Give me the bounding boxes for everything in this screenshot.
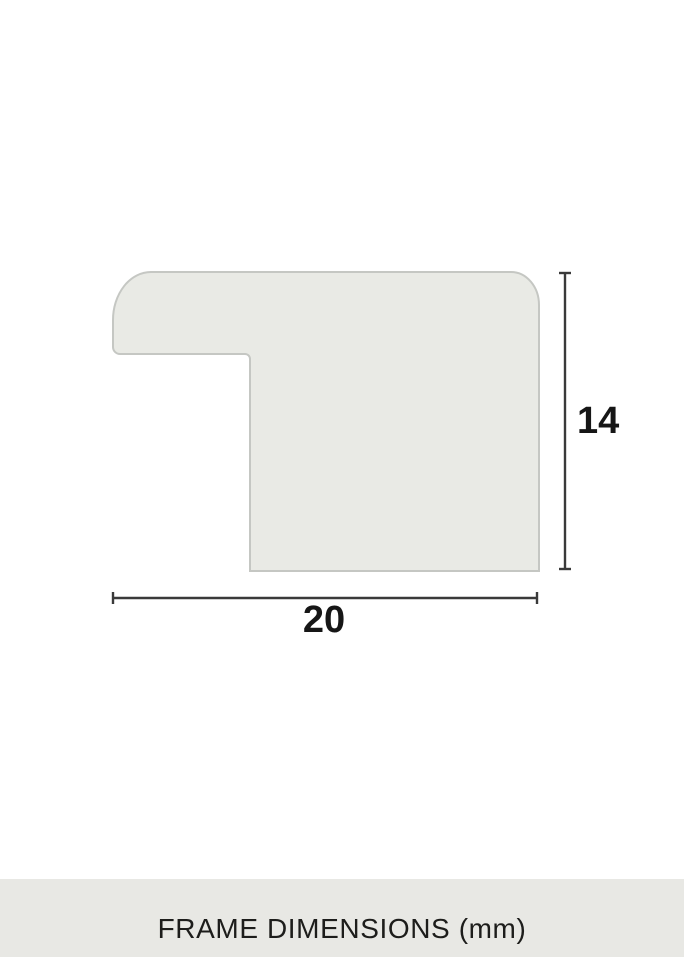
frame-dimensions-diagram: 14 20 FRAME DIMENSIONS (mm) (0, 0, 684, 957)
frame-profile-shape (113, 272, 539, 571)
height-dimension-value: 14 (577, 402, 619, 440)
caption-label: FRAME DIMENSIONS (mm) (0, 913, 684, 945)
height-dimension-line (559, 273, 571, 569)
width-dimension-value: 20 (303, 601, 345, 639)
